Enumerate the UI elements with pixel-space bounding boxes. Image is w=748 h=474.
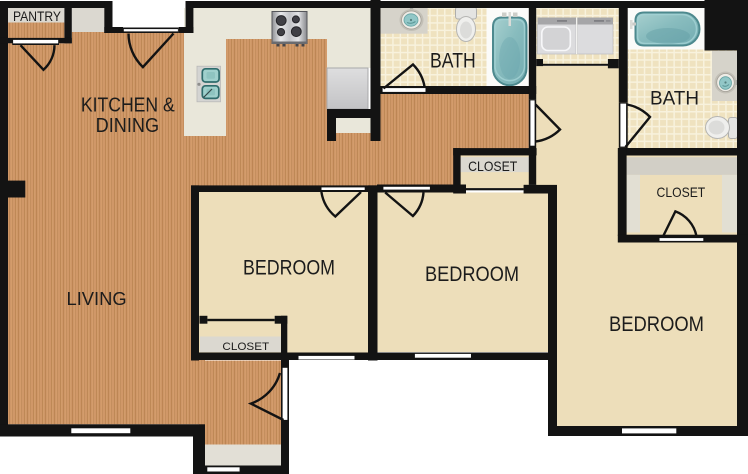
- svg-text:CLOSET: CLOSET: [222, 341, 269, 353]
- svg-text:PANTRY: PANTRY: [13, 9, 61, 24]
- svg-text:CLOSET: CLOSET: [468, 158, 518, 174]
- svg-text:BEDROOM: BEDROOM: [243, 257, 335, 280]
- svg-text:BATH: BATH: [430, 49, 476, 72]
- svg-text:CLOSET: CLOSET: [657, 184, 706, 200]
- svg-text:LIVING: LIVING: [67, 289, 127, 309]
- svg-text:BATH: BATH: [650, 89, 699, 110]
- svg-text:BEDROOM: BEDROOM: [425, 263, 519, 286]
- svg-text:KITCHEN &: KITCHEN &: [81, 94, 175, 116]
- svg-text:BEDROOM: BEDROOM: [609, 313, 704, 336]
- svg-text:DINING: DINING: [96, 115, 160, 137]
